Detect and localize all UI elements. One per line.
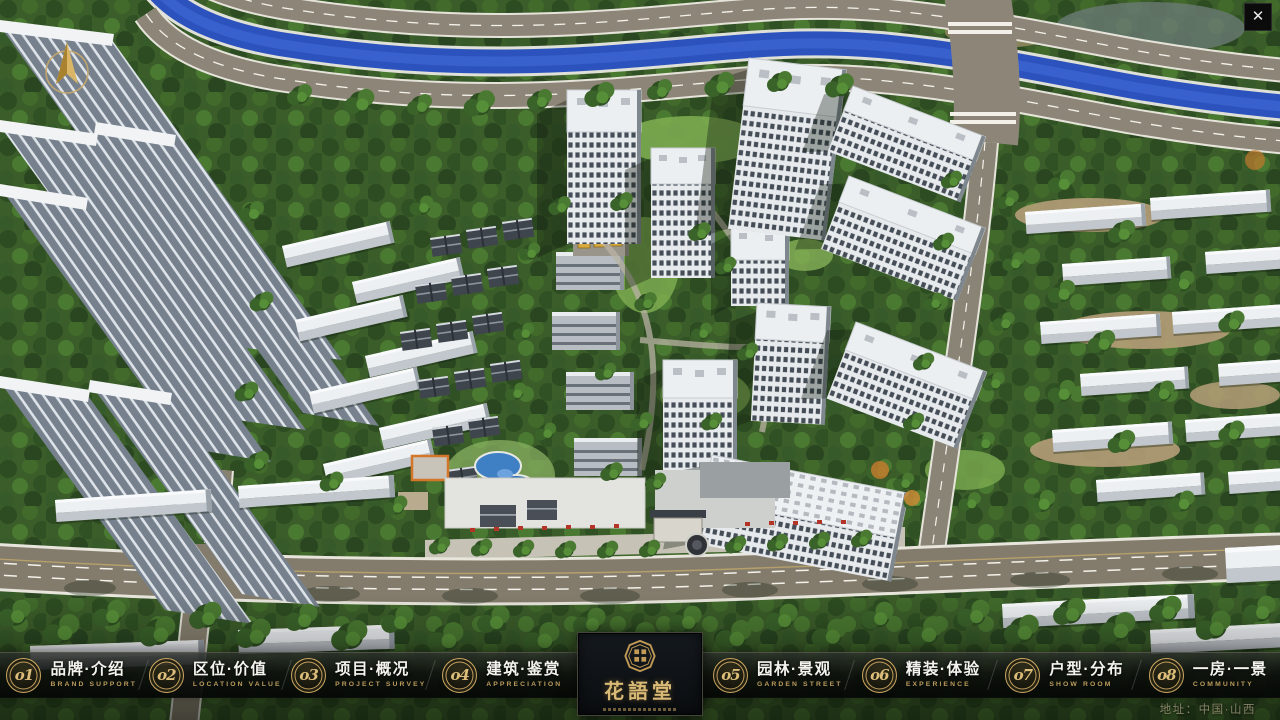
nav-number: o7 bbox=[1014, 666, 1032, 684]
nav-label: 户型·分布 bbox=[1049, 662, 1124, 678]
number-badge-icon: o2 bbox=[149, 658, 184, 693]
nav-label: 精装·体验 bbox=[906, 662, 981, 678]
nav-number: o4 bbox=[450, 666, 468, 684]
nav-item-views[interactable]: o8 一房·一景 COMMUNITY bbox=[1137, 653, 1280, 697]
close-button[interactable]: ✕ bbox=[1244, 3, 1272, 31]
nav-item-project[interactable]: o3 项目·概况 PROJECT SURVEY bbox=[287, 653, 431, 697]
number-badge-icon: o7 bbox=[1005, 658, 1040, 693]
nav-group-left: o1 品牌·介绍 BRAND SUPPORT o2 区位·价值 LOCATION… bbox=[0, 653, 574, 697]
number-badge-icon: o1 bbox=[6, 658, 41, 693]
nav-label: 品牌·介绍 bbox=[50, 662, 125, 678]
nav-number: o3 bbox=[299, 666, 317, 684]
nav-number: o1 bbox=[15, 666, 33, 684]
nav-label: 建筑·鉴赏 bbox=[486, 662, 561, 678]
nav-label: 园林·景观 bbox=[757, 662, 832, 678]
project-logo-subtitle-line bbox=[603, 708, 677, 711]
nav-item-location[interactable]: o2 区位·价值 LOCATION VALUE bbox=[144, 653, 288, 697]
nav-caption: COMMUNITY bbox=[1193, 681, 1254, 688]
number-badge-icon: o4 bbox=[442, 658, 477, 693]
nav-number: o8 bbox=[1157, 666, 1175, 684]
nav-item-garden[interactable]: o5 园林·景观 GARDEN STREET bbox=[706, 653, 850, 697]
compass-north-icon bbox=[38, 36, 96, 100]
octagon-seal-icon bbox=[623, 639, 657, 673]
nav-label: 区位·价值 bbox=[193, 662, 268, 678]
nav-caption: SHOW ROOM bbox=[1049, 681, 1112, 688]
nav-number: o2 bbox=[157, 666, 175, 684]
number-badge-icon: o5 bbox=[713, 658, 748, 693]
nav-label: 一房·一景 bbox=[1193, 662, 1268, 678]
project-address: 地址：中国·山西 bbox=[1160, 701, 1256, 717]
nav-caption: APPRECIATION bbox=[486, 681, 562, 688]
nav-caption: GARDEN STREET bbox=[757, 681, 842, 688]
project-logo-title: 花語堂 bbox=[604, 675, 676, 704]
nav-item-brand[interactable]: o1 品牌·介绍 BRAND SUPPORT bbox=[0, 653, 144, 697]
nav-caption: BRAND SUPPORT bbox=[50, 681, 137, 688]
nav-number: o6 bbox=[870, 666, 888, 684]
masterplan-render bbox=[0, 0, 1280, 720]
project-logo-panel[interactable]: 花語堂 bbox=[577, 632, 703, 716]
nav-label: 项目·概况 bbox=[335, 662, 410, 678]
number-badge-icon: o8 bbox=[1149, 658, 1184, 693]
nav-group-right: o5 园林·景观 GARDEN STREET o6 精装·体验 EXPERIEN… bbox=[706, 653, 1280, 697]
nav-item-floorplan[interactable]: o7 户型·分布 SHOW ROOM bbox=[993, 653, 1137, 697]
number-badge-icon: o6 bbox=[862, 658, 897, 693]
nav-caption: EXPERIENCE bbox=[906, 681, 971, 688]
number-badge-icon: o3 bbox=[291, 658, 326, 693]
nav-caption: LOCATION VALUE bbox=[193, 681, 282, 688]
nav-item-interior[interactable]: o6 精装·体验 EXPERIENCE bbox=[850, 653, 994, 697]
nav-number: o5 bbox=[721, 666, 739, 684]
nav-caption: PROJECT SURVEY bbox=[335, 681, 426, 688]
nav-item-architecture[interactable]: o4 建筑·鉴赏 APPRECIATION bbox=[431, 653, 575, 697]
